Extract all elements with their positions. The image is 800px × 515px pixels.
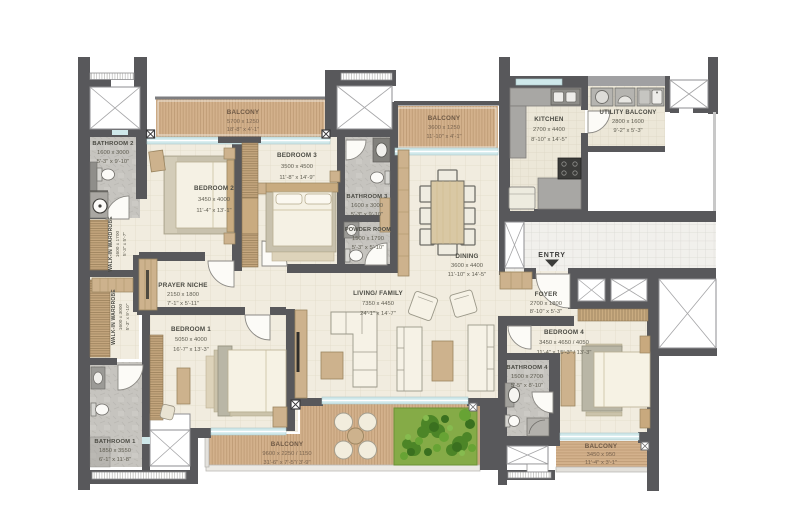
svg-text:WALK-IN WARDROBE: WALK-IN WARDROBE (111, 289, 117, 345)
svg-text:2700 x 4400: 2700 x 4400 (533, 127, 565, 133)
svg-text:BATHROOM 3: BATHROOM 3 (346, 194, 388, 200)
svg-text:1600 x 3000: 1600 x 3000 (351, 203, 383, 209)
svg-text:BALCONY: BALCONY (428, 115, 461, 122)
svg-text:7'-1" x 5'-11": 7'-1" x 5'-11" (167, 301, 199, 307)
svg-text:5700 x 1250: 5700 x 1250 (227, 119, 259, 125)
svg-text:6'-1" x 11'-8": 6'-1" x 11'-8" (99, 457, 131, 463)
svg-text:5'-3" x 9'-10": 5'-3" x 9'-10" (97, 159, 129, 165)
svg-text:KITCHEN: KITCHEN (534, 116, 564, 123)
svg-text:PRAYER NICHE: PRAYER NICHE (158, 282, 207, 289)
svg-text:3600 x 1250: 3600 x 1250 (428, 125, 460, 131)
svg-text:9600 x 2250 / 1150: 9600 x 2250 / 1150 (262, 451, 311, 457)
svg-text:FOYER: FOYER (535, 291, 558, 298)
svg-text:UTILITY BALCONY: UTILITY BALCONY (600, 110, 657, 116)
svg-text:24'-1" x 14'-7": 24'-1" x 14'-7" (360, 311, 396, 317)
svg-text:BALCONY: BALCONY (585, 443, 618, 450)
svg-text:1600 x 3000: 1600 x 3000 (118, 303, 124, 330)
svg-text:BATHROOM 4: BATHROOM 4 (506, 365, 548, 371)
svg-text:11'-4" x 15'-3" / 13'-3": 11'-4" x 15'-3" / 13'-3" (537, 350, 592, 356)
svg-text:8'-10" x 14'-5": 8'-10" x 14'-5" (531, 137, 567, 143)
svg-text:3500 x 4500: 3500 x 4500 (281, 164, 313, 170)
svg-text:5'-3" x 5'-10": 5'-3" x 5'-10" (352, 245, 384, 251)
svg-text:11'-4" x 13'-1": 11'-4" x 13'-1" (196, 208, 231, 214)
svg-text:1600 x 3000: 1600 x 3000 (97, 150, 129, 156)
svg-text:5'-3" x 9'-10": 5'-3" x 9'-10" (351, 212, 383, 218)
svg-text:POWDER ROOM: POWDER ROOM (345, 227, 391, 233)
svg-text:BEDROOM 4: BEDROOM 4 (544, 329, 584, 336)
svg-text:2150 x 1800: 2150 x 1800 (167, 292, 199, 298)
svg-text:11'-10" x 14'-5": 11'-10" x 14'-5" (448, 272, 486, 278)
svg-text:7350 x 4450: 7350 x 4450 (362, 301, 394, 307)
svg-text:BEDROOM 2: BEDROOM 2 (194, 185, 234, 192)
svg-text:LIVING/ FAMILY: LIVING/ FAMILY (353, 290, 403, 297)
svg-text:DINING: DINING (455, 253, 478, 260)
svg-text:5'-3" x 5'-7": 5'-3" x 5'-7" (122, 232, 128, 256)
svg-text:BALCONY: BALCONY (271, 441, 304, 448)
svg-text:8'-10" x 5'-3": 8'-10" x 5'-3" (530, 309, 562, 315)
svg-text:1500 x 2700: 1500 x 2700 (511, 374, 543, 380)
svg-text:5050 x 4000: 5050 x 4000 (175, 337, 207, 343)
svg-text:BEDROOM 1: BEDROOM 1 (171, 326, 211, 333)
svg-text:16'-7" x 13'-3": 16'-7" x 13'-3" (173, 347, 209, 353)
svg-text:18'-8" x 4'-1": 18'-8" x 4'-1" (227, 127, 259, 133)
svg-text:5'-5" x 8'-10": 5'-5" x 8'-10" (511, 383, 543, 389)
svg-text:3450 x 4000: 3450 x 4000 (198, 197, 230, 203)
svg-text:ENTRY: ENTRY (538, 252, 565, 259)
svg-text:1500 x 1790: 1500 x 1790 (352, 236, 384, 242)
svg-text:3600 x 4400: 3600 x 4400 (451, 263, 483, 269)
svg-text:5'-3" x 9'-10": 5'-3" x 9'-10" (125, 303, 131, 330)
svg-text:3450 x 950: 3450 x 950 (587, 452, 616, 458)
svg-text:BATHROOM 2: BATHROOM 2 (92, 141, 134, 147)
svg-text:9'-2" x 5'-3": 9'-2" x 5'-3" (613, 128, 642, 134)
svg-text:1600 x 1700: 1600 x 1700 (115, 230, 121, 257)
svg-text:BALCONY: BALCONY (227, 109, 260, 116)
svg-text:31'-6" x 7'-5"/ 3'-9": 31'-6" x 7'-5"/ 3'-9" (263, 460, 310, 466)
svg-text:11'-10" x 4'-1": 11'-10" x 4'-1" (426, 134, 461, 140)
svg-text:11'-4" x 3'-1": 11'-4" x 3'-1" (585, 460, 617, 466)
svg-text:3450 x 4650 / 4050: 3450 x 4650 / 4050 (539, 340, 589, 346)
svg-text:2800 x 1600: 2800 x 1600 (612, 119, 644, 125)
svg-text:BATHROOM 1: BATHROOM 1 (94, 439, 136, 445)
svg-text:WALK-IN WARDROBE: WALK-IN WARDROBE (108, 216, 114, 272)
svg-text:11'-8" x 14'-9": 11'-8" x 14'-9" (279, 175, 314, 181)
svg-text:2700 x 1800: 2700 x 1800 (530, 301, 562, 307)
svg-text:1850 x 3550: 1850 x 3550 (99, 448, 131, 454)
svg-text:BEDROOM 3: BEDROOM 3 (277, 152, 317, 159)
